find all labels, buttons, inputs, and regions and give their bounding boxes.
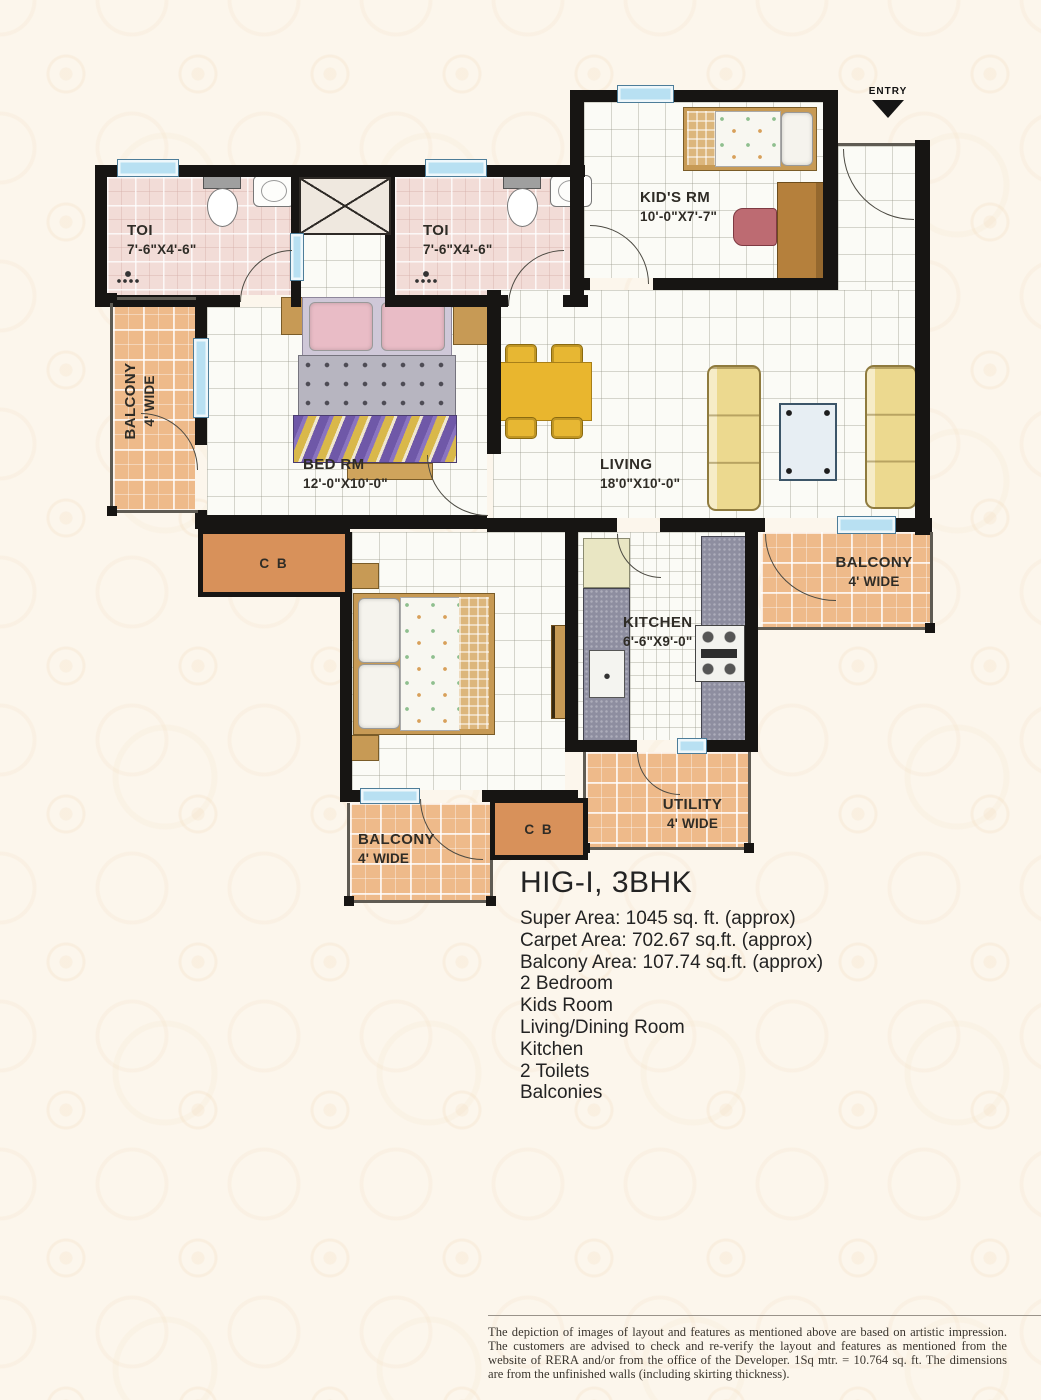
wall — [565, 740, 637, 752]
balcony-left-name: BALCONY — [121, 342, 141, 460]
utility-name: UTILITY — [645, 795, 740, 815]
sofa-left — [707, 365, 761, 511]
wall — [195, 515, 487, 529]
window — [617, 85, 674, 103]
bedroom1-mattress — [298, 355, 456, 417]
kitchen-name: KITCHEN — [623, 613, 692, 633]
bedroom1-label: BED RM 12'-0"X10'-0" — [303, 455, 388, 493]
wall — [487, 290, 501, 454]
shaft-icon — [299, 177, 391, 235]
wall — [340, 790, 360, 802]
page: { "plan": { "entry_label": "ENTRY", "roo… — [0, 0, 1041, 1400]
wall — [660, 518, 765, 532]
cupboard1-label: C B — [259, 556, 288, 571]
sofa-right — [865, 365, 917, 509]
bottom-balcony-wall — [347, 900, 493, 903]
wall — [892, 518, 932, 532]
balcony-right-dim: 4' WIDE — [828, 573, 920, 591]
bottom-balcony-label: BALCONY 4' WIDE — [358, 830, 435, 868]
toilet1-label: TOI 7'-6"X4'-6" — [127, 221, 196, 259]
utility-dim: 4' WIDE — [645, 815, 740, 833]
toilet1-cistern-icon — [203, 175, 241, 189]
bedroom1-name: BED RM — [303, 455, 388, 475]
wall — [705, 740, 758, 752]
dining-chair-4 — [551, 417, 583, 439]
balcony-left-wall — [110, 297, 196, 300]
kitchen-label: KITCHEN 6'-6"X9'-0" — [623, 613, 692, 651]
window — [117, 159, 179, 177]
kids-chair — [733, 208, 777, 246]
entry-threshold — [838, 143, 915, 146]
toilet2-shower-icon — [413, 271, 439, 285]
window — [837, 516, 896, 534]
entry-marker: ENTRY — [856, 86, 920, 118]
footer-divider — [488, 1315, 1041, 1316]
balcony-right-wall — [758, 627, 933, 630]
balcony-left-label: BALCONY 4' WIDE — [121, 342, 163, 460]
detail-line: Living/Dining Room — [520, 1017, 920, 1039]
toilet1-sink-icon — [253, 175, 295, 207]
window — [290, 233, 304, 281]
kitchen-stove-icon — [695, 625, 745, 682]
wall — [745, 532, 758, 750]
dining-table — [498, 362, 592, 421]
bottom-balcony-wall — [347, 803, 350, 903]
bedroom2-pillow-bottom — [358, 664, 400, 729]
window — [360, 788, 420, 804]
dining-chair-3 — [505, 417, 537, 439]
disclaimer-text: The depiction of images of layout and fe… — [488, 1326, 1007, 1382]
entry-label: ENTRY — [856, 86, 920, 97]
bedroom1-pillow-left — [309, 302, 373, 351]
bedroom2-pillow-top — [358, 598, 400, 663]
detail-line: Balcony Area: 107.74 sq.ft. (approx) — [520, 952, 920, 974]
bottom-balcony-name: BALCONY — [358, 830, 435, 850]
wall — [570, 90, 838, 102]
kids-room-name: KID'S RM — [640, 188, 717, 208]
window — [677, 738, 707, 754]
bedroom2-bed-foot — [459, 597, 489, 729]
cupboard-2: C B — [490, 798, 588, 860]
wall — [95, 165, 107, 307]
living-label: LIVING 18'0"X10'-0" — [600, 455, 680, 493]
bedroom1-pillow-right — [381, 302, 445, 351]
cupboard2-label: C B — [524, 822, 553, 837]
kitchen-dim: 6'-6"X9'-0" — [623, 633, 692, 651]
living-name: LIVING — [600, 455, 680, 475]
bedroom1-dim: 12'-0"X10'-0" — [303, 475, 388, 493]
balcony-right-name: BALCONY — [828, 553, 920, 573]
kids-bed-sheet — [715, 111, 781, 167]
wall-cap — [486, 896, 496, 906]
window — [425, 159, 487, 177]
toilet2-name: TOI — [423, 221, 492, 241]
detail-line: 2 Toilets — [520, 1061, 920, 1083]
wall — [570, 90, 584, 307]
detail-line: 2 Bedroom — [520, 973, 920, 995]
detail-line: Super Area: 1045 sq. ft. (approx) — [520, 908, 920, 930]
living-dim: 18'0"X10'-0" — [600, 475, 680, 493]
cupboard-1: C B — [198, 529, 350, 597]
wall — [565, 532, 578, 750]
detail-line: Kids Room — [520, 995, 920, 1017]
floor-plan: C B C B TOI 7'-6"X4'-6" TOI 7'-6"X4'-6" … — [95, 85, 940, 905]
utility-label: UTILITY 4' WIDE — [645, 795, 740, 833]
plan-title: HIG-I, 3BHK — [520, 866, 920, 900]
wall — [823, 90, 838, 288]
window — [193, 338, 209, 418]
wall — [570, 278, 590, 290]
detail-line: Kitchen — [520, 1039, 920, 1061]
kids-bed-pillow — [781, 112, 813, 166]
detail-line: Carpet Area: 702.67 sq.ft. (approx) — [520, 930, 920, 952]
balcony-left-wall — [110, 299, 113, 513]
coffee-table — [779, 403, 837, 481]
bottom-balcony-dim: 4' WIDE — [358, 850, 435, 868]
utility-wall — [583, 847, 751, 850]
kids-room-dim: 10'-0"X7'-7" — [640, 208, 717, 226]
toilet1-name: TOI — [127, 221, 196, 241]
wall-cap — [107, 293, 117, 303]
kids-bed-foot — [687, 111, 715, 165]
wall-cap — [744, 843, 754, 853]
kids-wardrobe — [777, 182, 825, 284]
entry-arrow-icon — [872, 100, 904, 118]
title-block: HIG-I, 3BHK Super Area: 1045 sq. ft. (ap… — [520, 866, 920, 1104]
balcony-right-label: BALCONY 4' WIDE — [828, 553, 920, 591]
wall — [653, 278, 838, 290]
wall-cap — [107, 506, 117, 516]
toilet1-dim: 7'-6"X4'-6" — [127, 241, 196, 259]
bedroom2-bed-sheet — [400, 597, 460, 731]
toilet2-label: TOI 7'-6"X4'-6" — [423, 221, 492, 259]
balcony-right-wall — [930, 532, 933, 630]
toilet1-shower-icon — [115, 271, 141, 285]
toilet2-dim: 7'-6"X4'-6" — [423, 241, 492, 259]
wall-cap — [344, 896, 354, 906]
wall-cap — [925, 623, 935, 633]
wall — [487, 518, 617, 532]
plan-details: Super Area: 1045 sq. ft. (approx) Carpet… — [520, 908, 920, 1104]
kitchen-sink-icon — [589, 650, 625, 698]
balcony-left-dim: 4' WIDE — [141, 342, 159, 460]
toilet2-cistern-icon — [503, 175, 541, 189]
kids-room-label: KID'S RM 10'-0"X7'-7" — [640, 188, 717, 226]
wall — [915, 140, 930, 535]
utility-wall — [748, 752, 751, 850]
detail-line: Balconies — [520, 1082, 920, 1104]
balcony-left-wall — [110, 510, 198, 513]
